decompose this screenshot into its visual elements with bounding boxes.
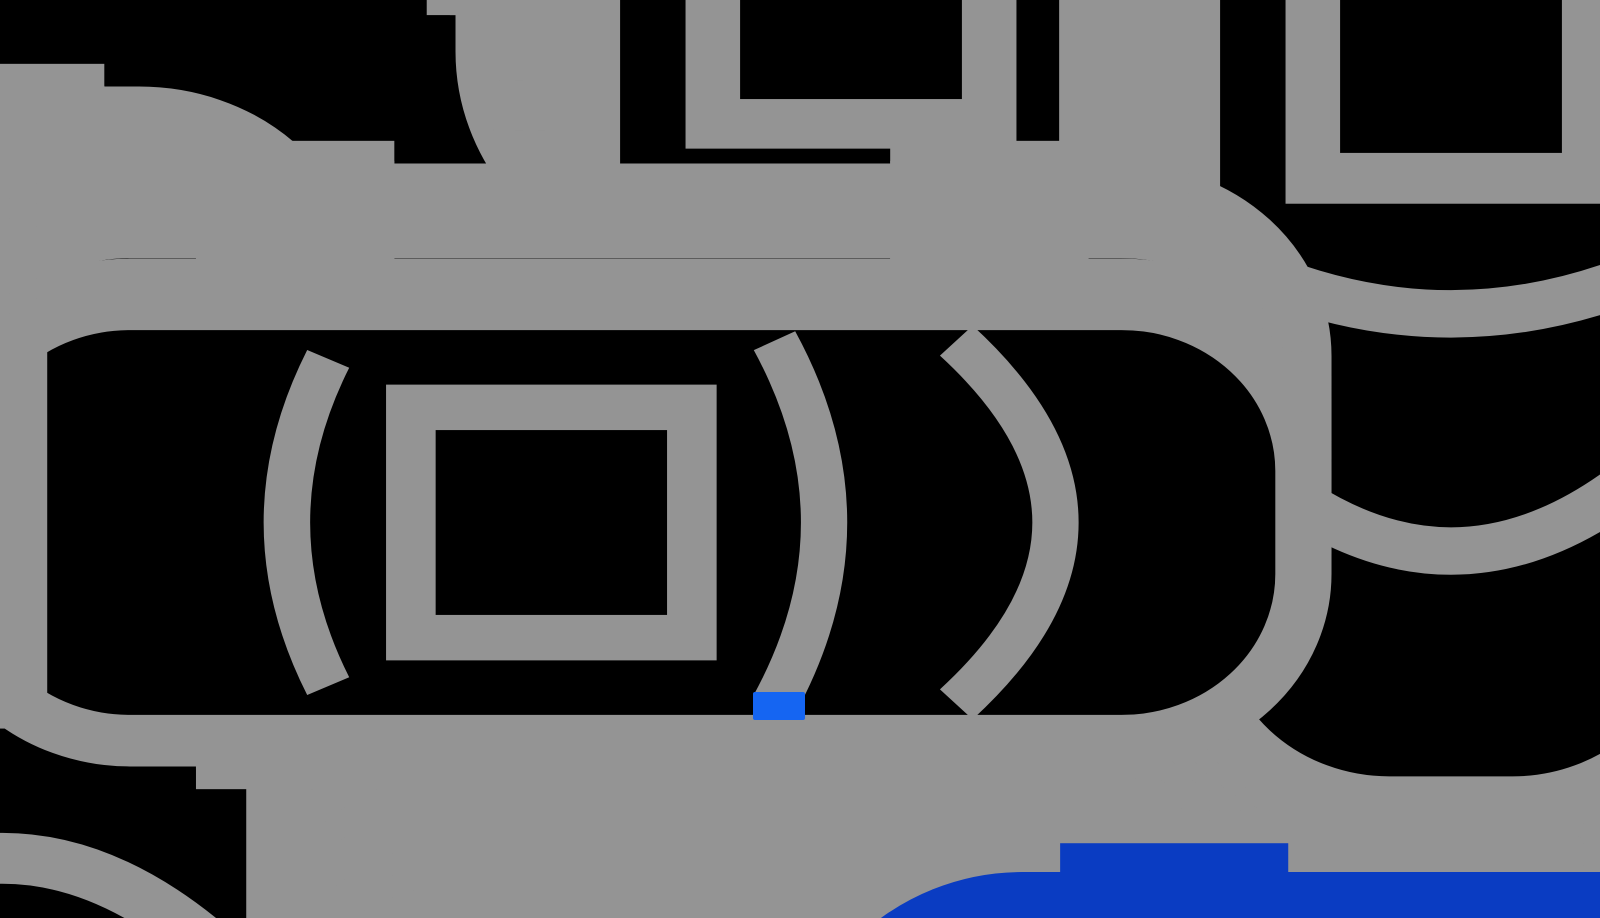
selected-parking-spot-highlight[interactable]	[753, 692, 805, 720]
parking-map	[0, 0, 1600, 918]
cars-layer	[0, 0, 1600, 918]
parking-map-svg	[0, 0, 1600, 918]
parking-spot-car[interactable]	[0, 256, 1303, 789]
